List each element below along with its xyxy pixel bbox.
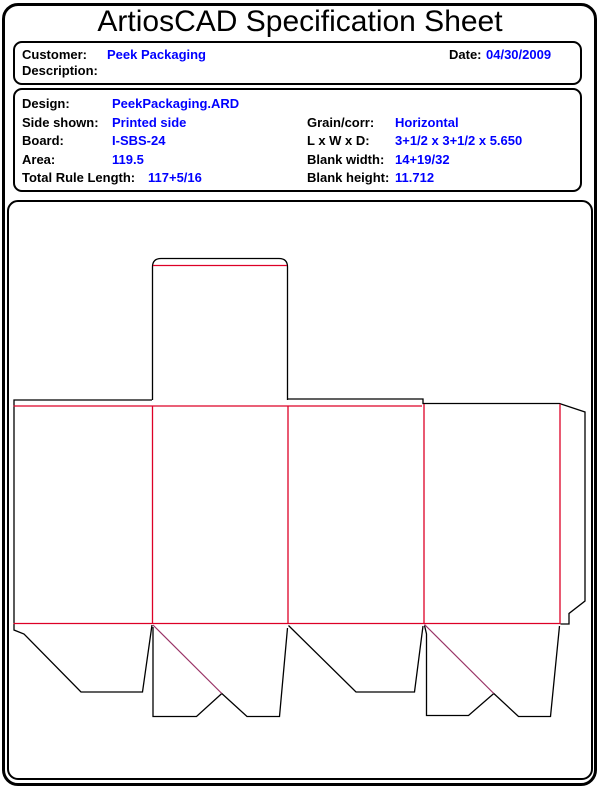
page-title: ArtiosCAD Specification Sheet — [0, 5, 600, 39]
customer-value: Peek Packaging — [107, 48, 206, 62]
design-label: Design: — [22, 97, 70, 111]
description-label: Description: — [22, 64, 98, 78]
side-shown-label: Side shown: — [22, 116, 99, 130]
lwd-label: L x W x D: — [307, 134, 370, 148]
rule-length-value: 117+5/16 — [148, 171, 202, 185]
grain-value: Horizontal — [395, 116, 459, 130]
blank-width-label: Blank width: — [307, 153, 384, 167]
grain-label: Grain/corr: — [307, 116, 374, 130]
side-shown-value: Printed side — [112, 116, 186, 130]
spec-sheet-page: ArtiosCAD Specification Sheet Customer: … — [0, 0, 600, 789]
blank-width-value: 14+19/32 — [395, 153, 450, 167]
area-label: Area: — [22, 153, 55, 167]
customer-label: Customer: — [22, 48, 87, 62]
area-value: 119.5 — [112, 153, 144, 167]
board-value: I-SBS-24 — [112, 134, 165, 148]
date-label: Date: — [449, 48, 482, 62]
blank-height-label: Blank height: — [307, 171, 389, 185]
design-value: PeekPackaging.ARD — [112, 97, 239, 111]
spec-box: Design: PeekPackaging.ARD Side shown: Pr… — [13, 88, 582, 192]
rule-length-label: Total Rule Length: — [22, 171, 135, 185]
board-label: Board: — [22, 134, 64, 148]
date-value: 04/30/2009 — [486, 48, 551, 62]
customer-box: Customer: Peek Packaging Date: 04/30/200… — [13, 41, 582, 85]
drawing-box — [7, 200, 593, 780]
blank-height-value: 11.712 — [395, 171, 434, 185]
lwd-value: 3+1/2 x 3+1/2 x 5.650 — [395, 134, 522, 148]
